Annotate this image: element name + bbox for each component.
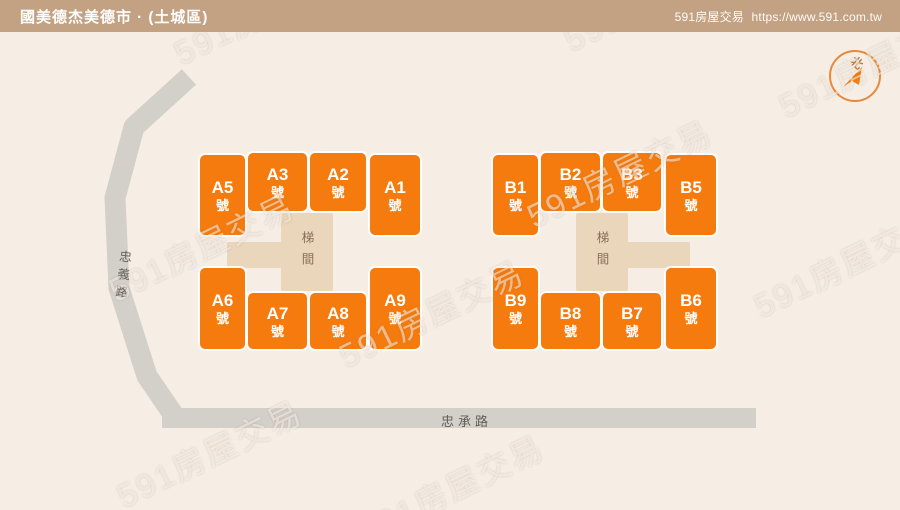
site-brand-label: 591房屋交易 (675, 10, 744, 24)
site-credit: 591房屋交易 https://www.591.com.tw (671, 8, 882, 25)
page-title: 國美德杰美德市 · (土城區) (20, 6, 208, 27)
header-bar: 國美德杰美德市 · (土城區) 591房屋交易 https://www.591.… (0, 0, 900, 32)
compass-arrow-icon (0, 0, 900, 510)
site-url: https://www.591.com.tw (752, 10, 882, 24)
site-plan-page: 國美德杰美德市 · (土城區) 591房屋交易 https://www.591.… (0, 0, 900, 510)
